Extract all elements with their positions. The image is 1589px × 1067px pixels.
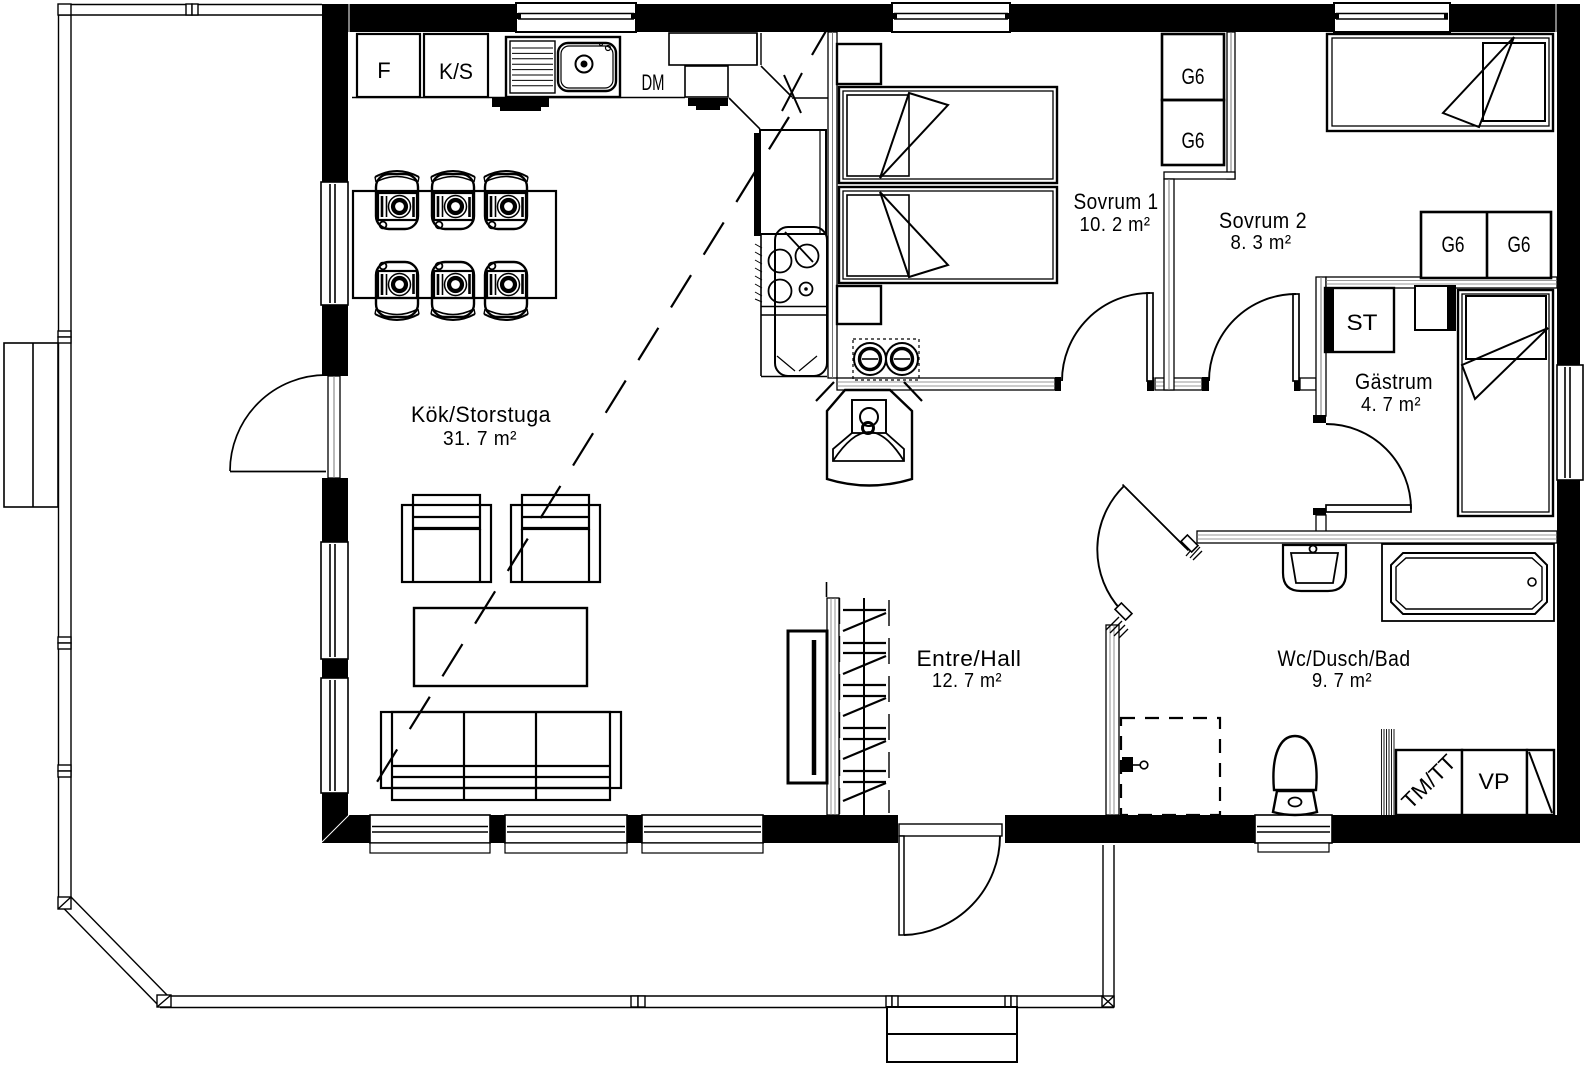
svg-text:G6: G6 [1442,232,1465,257]
svg-text:10. 2 m²: 10. 2 m² [1080,214,1151,236]
svg-text:VP: VP [1479,769,1510,794]
svg-text:4. 7 m²: 4. 7 m² [1361,394,1421,416]
svg-text:Sovrum 1: Sovrum 1 [1074,189,1159,214]
svg-text:Wc/Dusch/Bad: Wc/Dusch/Bad [1278,646,1411,671]
svg-text:Kök/Storstuga: Kök/Storstuga [411,402,551,427]
svg-text:12. 7 m²: 12. 7 m² [932,670,1002,692]
svg-text:Sovrum 2: Sovrum 2 [1219,208,1307,233]
svg-text:G6: G6 [1182,128,1205,153]
svg-text:ST: ST [1347,310,1378,335]
svg-text:K/S: K/S [439,59,473,84]
svg-text:DM: DM [642,70,665,95]
svg-text:31. 7 m²: 31. 7 m² [443,428,517,450]
svg-text:8. 3 m²: 8. 3 m² [1231,232,1292,254]
svg-text:F: F [377,58,390,83]
svg-text:G6: G6 [1182,64,1205,89]
svg-text:9. 7 m²: 9. 7 m² [1312,670,1372,692]
svg-text:Entre/Hall: Entre/Hall [917,646,1022,671]
svg-text:Gästrum: Gästrum [1355,369,1433,394]
svg-text:G6: G6 [1508,232,1531,257]
